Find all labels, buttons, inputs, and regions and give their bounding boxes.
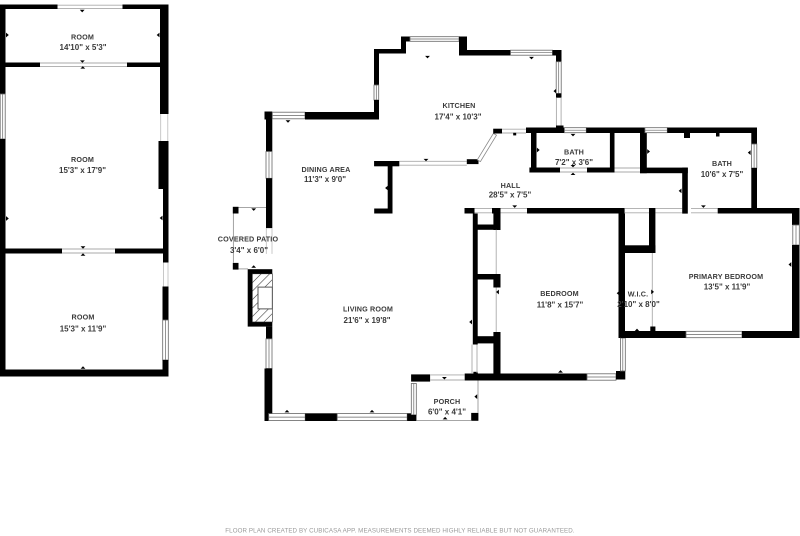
svg-text:15'3" x 17'9": 15'3" x 17'9"	[59, 166, 106, 175]
svg-text:DINING AREA: DINING AREA	[302, 165, 351, 174]
svg-text:KITCHEN: KITCHEN	[443, 101, 476, 110]
svg-text:PRIMARY BEDROOM: PRIMARY BEDROOM	[689, 272, 764, 281]
svg-text:14'10" x 5'3": 14'10" x 5'3"	[60, 43, 107, 52]
svg-text:W.I.C.: W.I.C.	[628, 290, 648, 299]
svg-text:BATH: BATH	[564, 148, 584, 157]
svg-text:ROOM: ROOM	[72, 313, 95, 322]
svg-text:BATH: BATH	[712, 159, 732, 168]
svg-text:PORCH: PORCH	[434, 397, 461, 406]
svg-text:HALL: HALL	[501, 181, 521, 190]
svg-text:7'2" x 3'6": 7'2" x 3'6"	[555, 158, 593, 167]
svg-text:11'3" x 9'0": 11'3" x 9'0"	[304, 175, 346, 184]
svg-text:COVERED PATIO: COVERED PATIO	[218, 235, 279, 244]
svg-text:11'8" x 15'7": 11'8" x 15'7"	[537, 301, 584, 310]
svg-text:2'10" x 8'0": 2'10" x 8'0"	[617, 300, 660, 309]
svg-text:6'0" x 4'1": 6'0" x 4'1"	[428, 408, 466, 417]
svg-text:10'6" x 7'5": 10'6" x 7'5"	[701, 170, 744, 179]
svg-text:FLOOR PLAN CREATED BY CUBICASA: FLOOR PLAN CREATED BY CUBICASA APP. MEAS…	[225, 528, 575, 535]
svg-text:21'6" x 19'8": 21'6" x 19'8"	[344, 316, 391, 325]
svg-text:13'5" x 11'9": 13'5" x 11'9"	[704, 283, 751, 292]
svg-text:17'4" x 10'3": 17'4" x 10'3"	[435, 113, 482, 122]
svg-text:15'3" x 11'9": 15'3" x 11'9"	[60, 325, 107, 334]
svg-text:LIVING ROOM: LIVING ROOM	[343, 305, 393, 314]
svg-text:ROOM: ROOM	[71, 155, 94, 164]
svg-text:28'5" x 7'5": 28'5" x 7'5"	[489, 191, 532, 200]
svg-text:3'4" x 6'0": 3'4" x 6'0"	[230, 246, 268, 255]
svg-text:ROOM: ROOM	[71, 33, 94, 42]
svg-text:BEDROOM: BEDROOM	[540, 289, 579, 298]
